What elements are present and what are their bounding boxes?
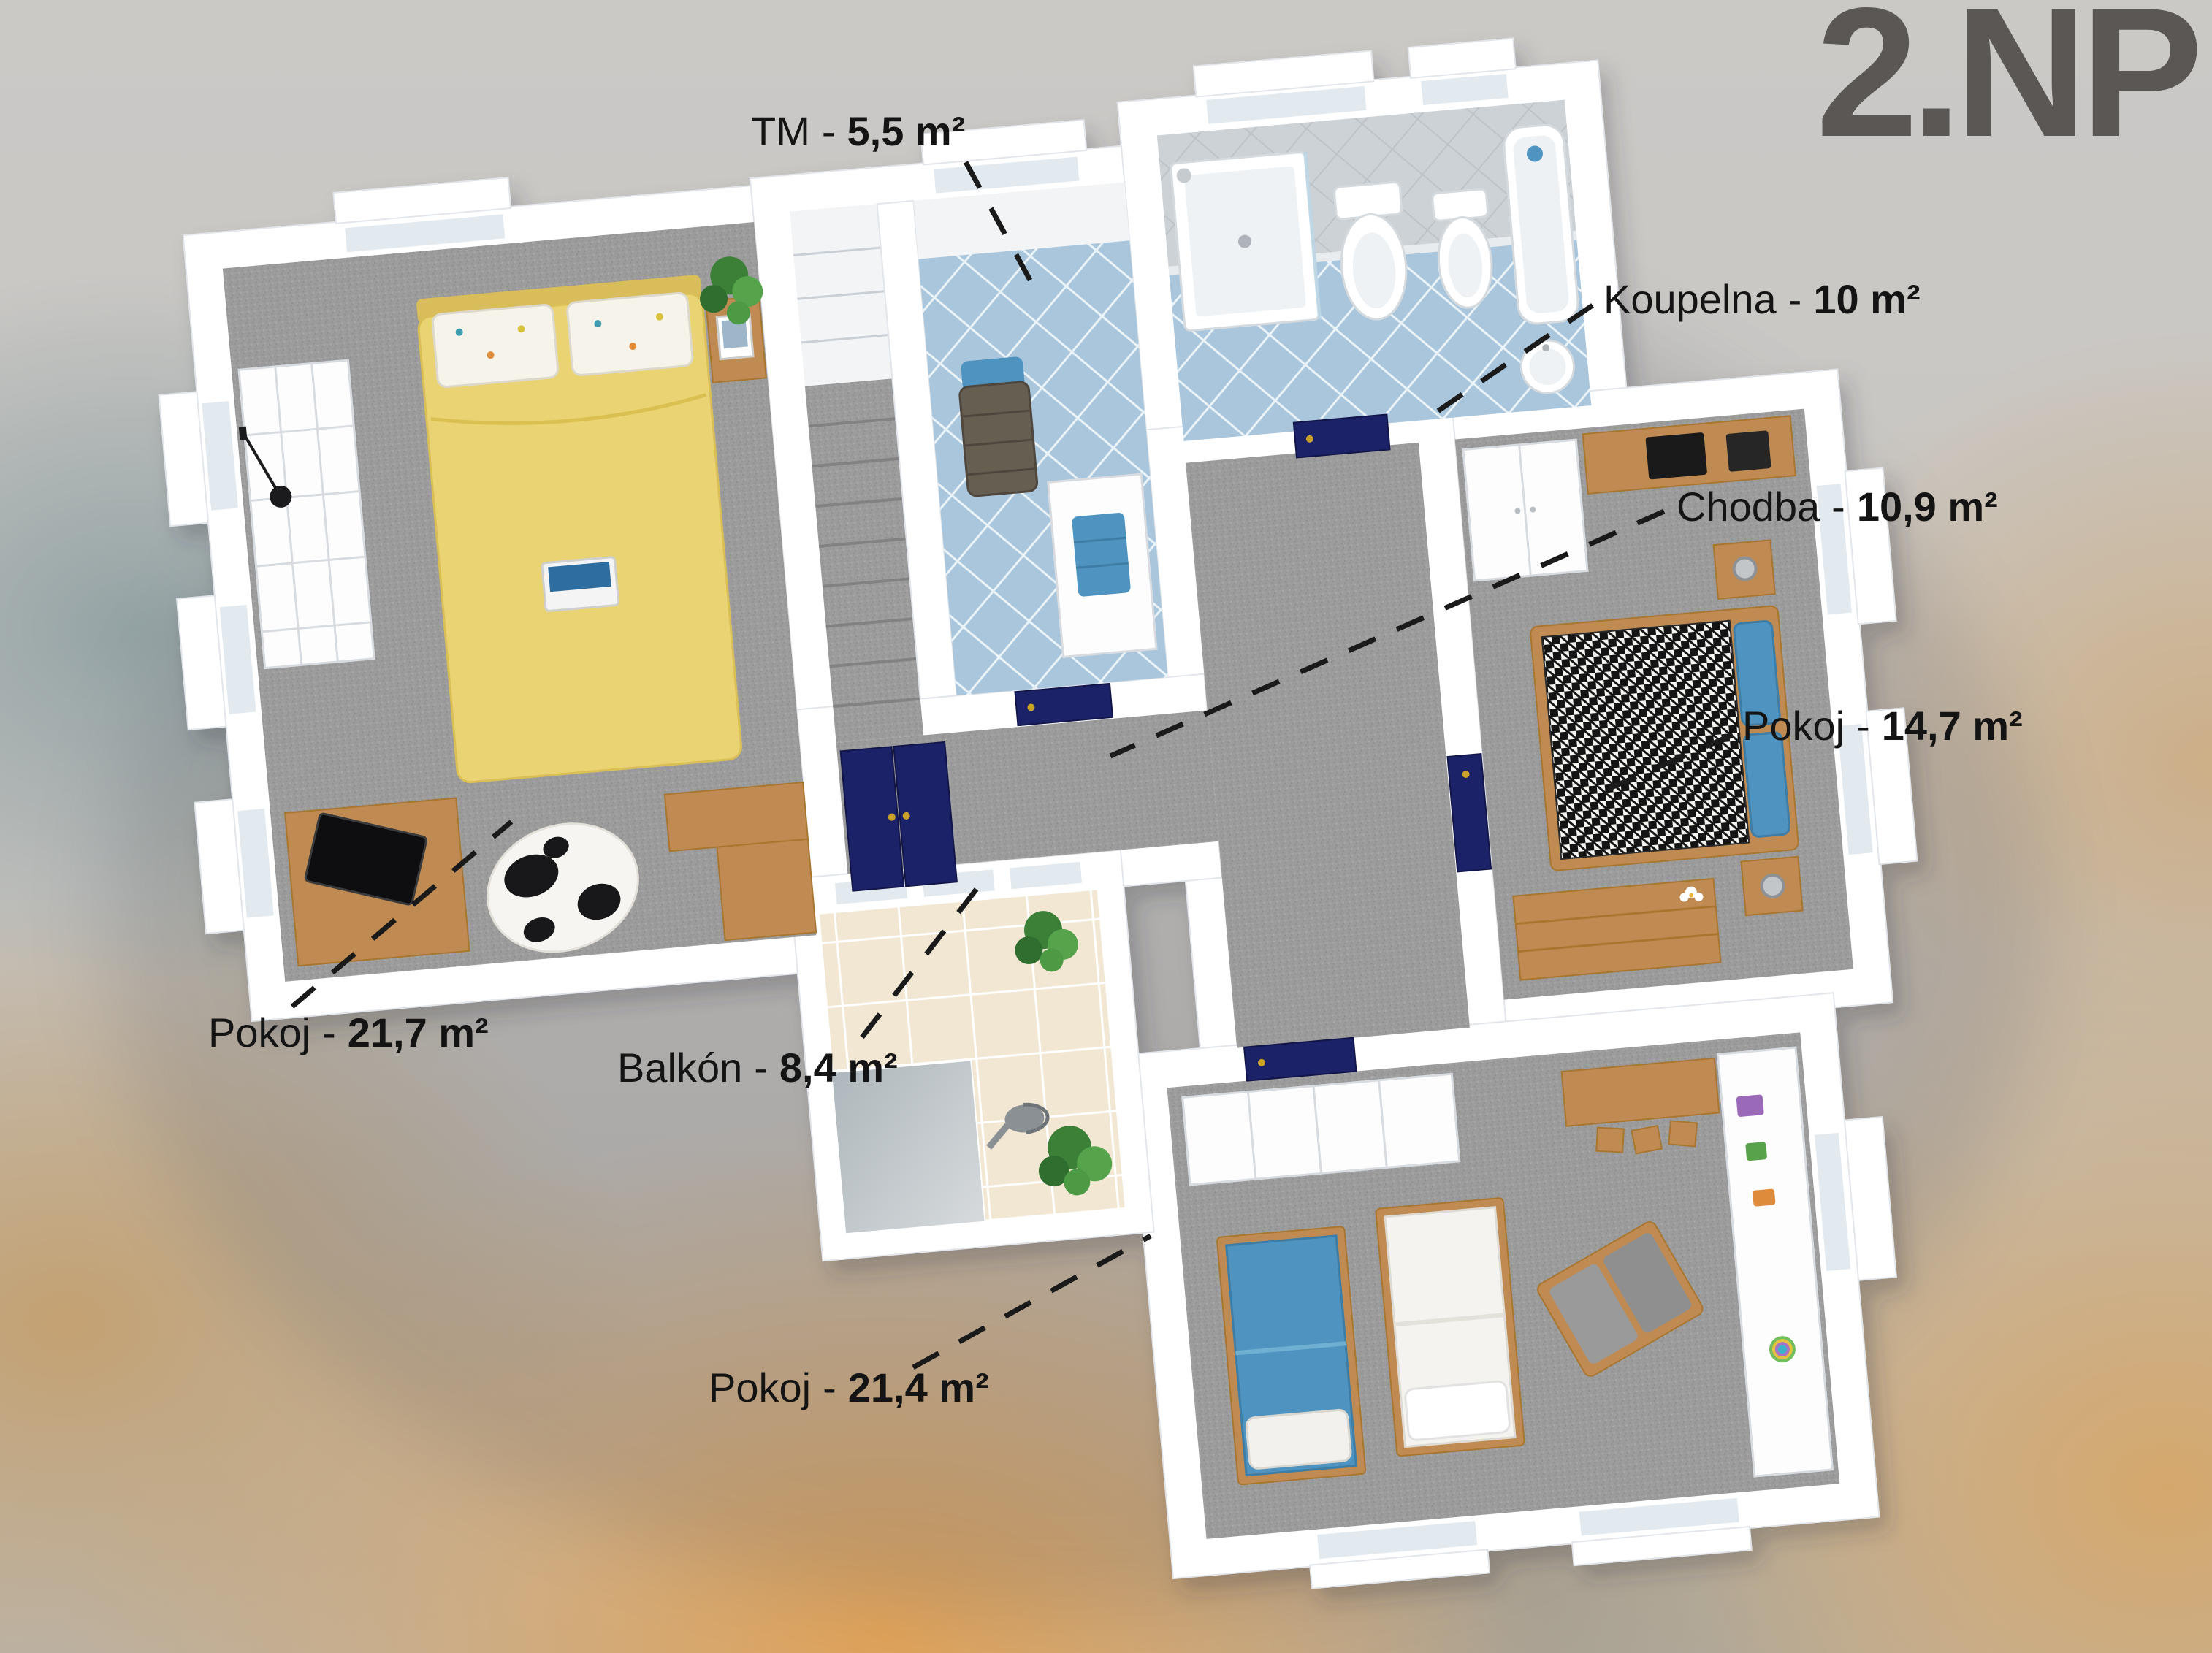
wardrobe xyxy=(1463,440,1587,581)
room-label-koupelna: Koupelna-10 m² xyxy=(1603,276,1921,323)
single-bed-blue xyxy=(1217,1226,1366,1485)
double-bed-yellow xyxy=(416,275,742,783)
room-label-chodba: Chodba-10,9 m² xyxy=(1677,484,1998,530)
nightstand-lamp-bottom xyxy=(1742,857,1803,916)
room-name: Balkón xyxy=(617,1045,742,1091)
room-name: TM xyxy=(751,108,810,154)
label-separator: - xyxy=(1788,276,1802,322)
label-separator: - xyxy=(322,1009,336,1055)
room-label-pokoj-14-7: Pokoj-14,7 m² xyxy=(1742,703,2023,749)
laptop xyxy=(542,557,619,611)
label-separator: - xyxy=(823,1364,836,1410)
tv-desk xyxy=(285,798,469,966)
floor-plan-rendering xyxy=(0,0,2212,1653)
room-area: 5,5 m² xyxy=(847,108,966,154)
label-separator: - xyxy=(822,108,836,154)
floor-plan-scene: TM-5,5 m² Koupelna-10 m² Chodba-10,9 m² … xyxy=(0,0,2212,1653)
room-name: Pokoj xyxy=(1742,703,1845,749)
label-separator: - xyxy=(1856,703,1870,749)
shower xyxy=(1170,152,1319,331)
nightstand-lamp-top xyxy=(1714,540,1775,599)
room-area: 21,7 m² xyxy=(348,1009,489,1055)
room-label-pokoj-21-7: Pokoj-21,7 m² xyxy=(208,1009,489,1056)
floor-title: 2.NP xyxy=(1816,0,2196,165)
label-separator: - xyxy=(1831,484,1845,530)
room-label-pokoj-21-4: Pokoj-21,4 m² xyxy=(709,1364,989,1411)
dresser xyxy=(1513,879,1720,980)
room-name: Pokoj xyxy=(709,1364,811,1410)
room-pokoj-21-7 xyxy=(228,253,820,991)
room-name: Pokoj xyxy=(208,1009,310,1055)
utility-cabinet xyxy=(1048,474,1156,657)
single-bed-white xyxy=(1376,1198,1525,1457)
room-name: Koupelna xyxy=(1603,276,1777,322)
room-label-tm: TM-5,5 m² xyxy=(751,108,965,155)
label-separator: - xyxy=(754,1045,768,1091)
room-name: Chodba xyxy=(1677,484,1820,530)
room-area: 21,4 m² xyxy=(848,1364,989,1410)
room-area: 8,4 m² xyxy=(779,1045,898,1091)
room-area: 10,9 m² xyxy=(1857,484,1998,530)
room-label-balkon: Balkón-8,4 m² xyxy=(617,1045,898,1091)
room-area: 10 m² xyxy=(1813,276,1920,322)
door-bathroom xyxy=(1294,415,1390,458)
room-area: 14,7 m² xyxy=(1882,703,2023,749)
